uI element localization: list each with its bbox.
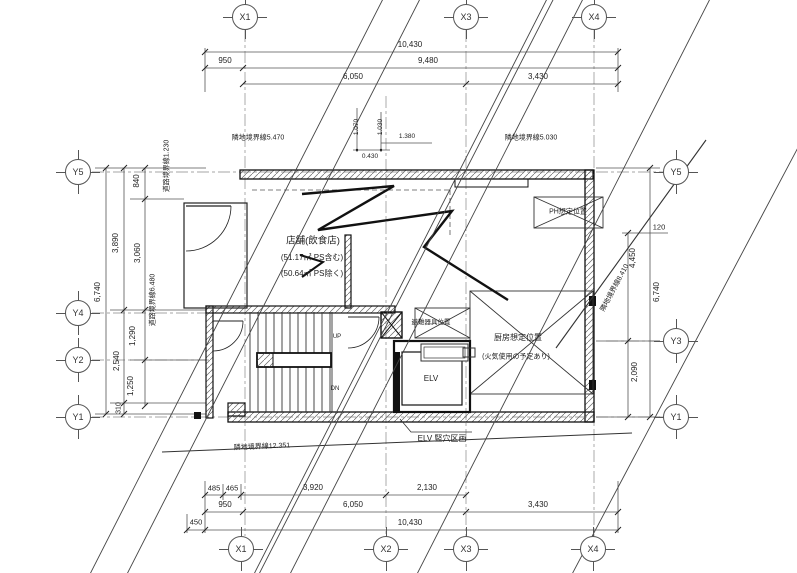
grid-bubble-bottom-x1: X1	[228, 536, 254, 562]
label-kitchen-note: (火気使用の予定あり)	[482, 354, 550, 361]
grid-label-x1: X1	[228, 536, 254, 562]
boundary-label-top-left: 隣地境界線5.470	[232, 135, 285, 142]
grid-bubble-right-y1: Y1	[663, 404, 689, 430]
grid-bubble-left-y4: Y4	[65, 300, 91, 326]
grid-label-x4: X4	[580, 536, 606, 562]
label-stair-down: DN	[331, 386, 340, 392]
dim-right-overall: 6,740	[653, 282, 661, 302]
dim-left-seg3: 1,290	[129, 326, 137, 346]
dim-right-offset: 120	[653, 223, 666, 231]
dim-top-x3-x4: 3,430	[528, 73, 548, 81]
dim-bottom-edge: 450	[190, 518, 203, 526]
stair-handrail-hatch	[257, 353, 273, 367]
grid-bubble-bottom-x4: X4	[580, 536, 606, 562]
grid-label-x1: X1	[232, 4, 258, 30]
dim-small-a: 1.070	[354, 119, 361, 135]
grid-bubble-right-y3: Y3	[663, 328, 689, 354]
grid-label-y3: Y3	[663, 328, 689, 354]
dim-bottom-offset: 950	[218, 501, 231, 509]
dim-left-upper: 3,890	[112, 233, 120, 253]
dim-small-b: 1.030	[378, 119, 385, 135]
grid-bubble-bottom-x3: X3	[453, 536, 479, 562]
grid-label-x4: X4	[581, 4, 607, 30]
dim-top-x1-x3: 6,050	[343, 73, 363, 81]
kitchen-area-box	[470, 291, 593, 394]
label-kitchen-area: 厨房想定位置	[494, 334, 542, 342]
dim-small-d: 1.380	[399, 134, 415, 141]
dim-left-seg4: 1,250	[127, 376, 135, 396]
dim-small-c: 0.430	[362, 154, 378, 161]
grid-label-x3: X3	[453, 4, 479, 30]
dim-bottom-x1-x3: 6,050	[343, 501, 363, 509]
dim-top-offset: 950	[218, 57, 231, 65]
room-label-store-area-excl: (50.64㎡ PS除く)	[281, 270, 343, 278]
dim-left-seg2: 3,060	[134, 243, 142, 263]
grid-label-y5: Y5	[663, 159, 689, 185]
label-evacuation: 避難器具位置	[412, 320, 451, 327]
grid-bubble-bottom-x2: X2	[373, 536, 399, 562]
dim-bottom-seg3: 3,920	[303, 484, 323, 492]
dim-left-overall: 6,740	[94, 282, 102, 302]
grid-center-lines	[92, 30, 663, 536]
grid-label-y5: Y5	[65, 159, 91, 185]
grid-bubble-left-y2: Y2	[65, 347, 91, 373]
boundary-label-left-lower: 道路境界線6.480	[150, 274, 157, 327]
label-ph-area: PH想定位置	[549, 209, 587, 216]
label-stair-up: UP	[333, 334, 341, 340]
grid-label-y4: Y4	[65, 300, 91, 326]
grid-bubble-left-y1: Y1	[65, 404, 91, 430]
floor-plan-drawing	[0, 0, 797, 573]
dim-left-mid: 2,540	[113, 351, 121, 371]
dim-top-overall: 10,430	[398, 41, 422, 49]
dim-top-span: 9,480	[418, 57, 438, 65]
boundary-line-bottom	[162, 433, 632, 452]
grid-bubble-right-y5: Y5	[663, 159, 689, 185]
grid-label-y2: Y2	[65, 347, 91, 373]
grid-bubble-top-x4: X4	[581, 4, 607, 30]
crossing-diagonals	[88, 0, 797, 573]
grid-label-x2: X2	[373, 536, 399, 562]
grid-label-y1: Y1	[663, 404, 689, 430]
dim-bottom-seg4: 2,130	[417, 484, 437, 492]
boundary-label-top-right: 隣地境界線5.030	[505, 135, 558, 142]
dim-bottom-overall: 10,430	[398, 519, 422, 527]
floor-plan-page: X1 X3 X4 X1 X2 X3 X4 Y5 Y4 Y2 Y1 Y5 Y3 Y…	[0, 0, 797, 573]
dim-bottom-seg2: 465	[226, 484, 239, 492]
grid-label-y1: Y1	[65, 404, 91, 430]
dim-bottom-seg1: 485	[208, 484, 221, 492]
dim-bottom-x3-x4: 3,430	[528, 501, 548, 509]
grid-label-x3: X3	[453, 536, 479, 562]
grid-bubble-top-x3: X3	[453, 4, 479, 30]
label-elevator-shaft-note: ELV 竪穴区画	[418, 435, 467, 443]
boundary-label-left-upper: 道路境界線1.230	[164, 140, 171, 193]
dim-left-seg1: 840	[133, 174, 141, 187]
dim-left-lower: 310	[116, 402, 123, 414]
dim-right-lower: 2,090	[631, 362, 639, 382]
room-label-store-area-incl: (51.17㎡ PS含む)	[281, 254, 343, 262]
label-elevator: ELV	[424, 375, 439, 383]
grid-bubble-top-x1: X1	[232, 4, 258, 30]
grid-bubble-left-y5: Y5	[65, 159, 91, 185]
room-label-store: 店舗(飲食店)	[286, 236, 340, 246]
